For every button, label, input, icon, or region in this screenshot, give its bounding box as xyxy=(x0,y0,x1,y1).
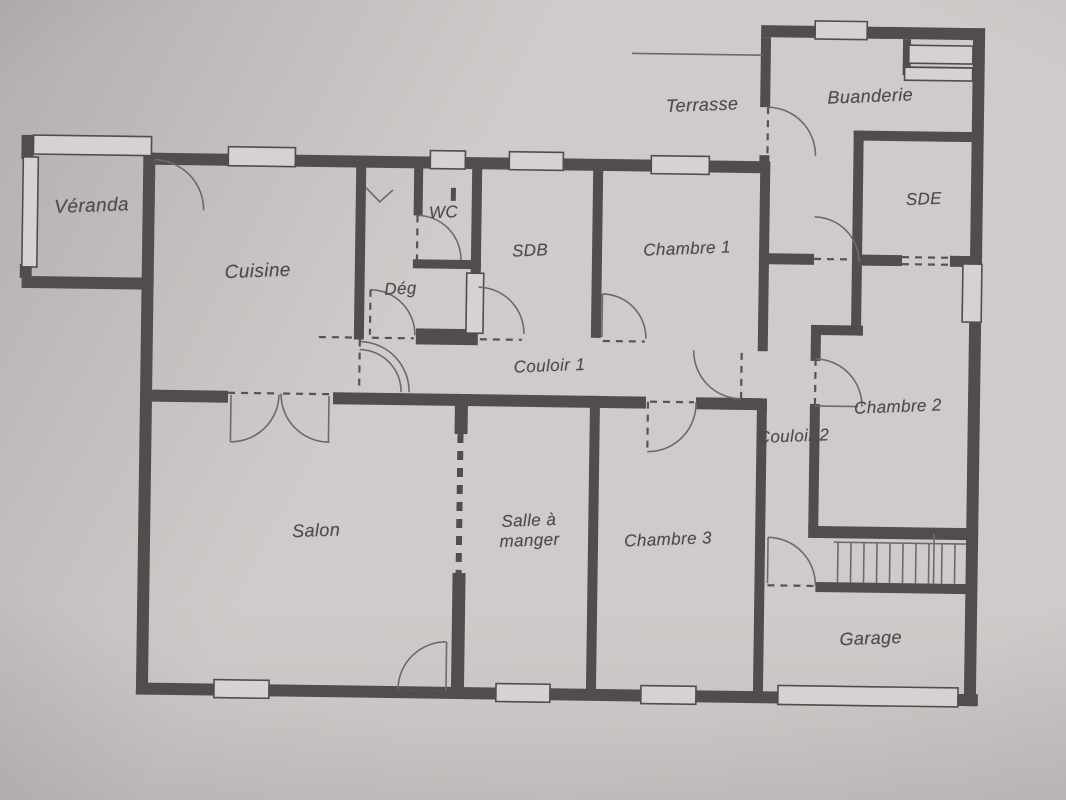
window-symbol xyxy=(905,67,973,81)
door-opening-dashed xyxy=(647,402,648,450)
door-arc xyxy=(478,287,525,334)
wall-segment xyxy=(451,573,466,689)
check-mark xyxy=(366,188,393,202)
wall-segment xyxy=(808,404,820,528)
door-arc xyxy=(602,294,647,339)
door-arc xyxy=(359,342,410,393)
door-arc xyxy=(767,537,816,586)
door-leaf xyxy=(230,395,231,442)
room-label-couloir2: Couloir 2 xyxy=(757,425,829,448)
scanned-floor-plan-page: Véranda Cuisine WC Dég SDB Chambre 1 Ter… xyxy=(0,0,1066,800)
sliding-door-dashed xyxy=(902,264,950,265)
wall-segment xyxy=(136,153,156,695)
sliding-door-dashed xyxy=(902,257,950,258)
window-symbol xyxy=(228,147,295,167)
room-label-wc: WC xyxy=(429,202,459,223)
door-leaf xyxy=(602,294,603,337)
room-label-buanderie: Buanderie xyxy=(827,84,913,109)
door-opening-dashed xyxy=(283,394,330,395)
partition-opening-dashed xyxy=(459,434,461,573)
wall-segment xyxy=(152,390,228,403)
wall-stub xyxy=(451,188,456,201)
door-arc xyxy=(647,402,696,453)
stairs-direction-line xyxy=(933,534,934,584)
room-label-salle-a-manger: Salle à manger xyxy=(498,510,560,552)
window-symbol xyxy=(430,151,465,169)
wall-segment xyxy=(761,25,983,40)
wall-segment xyxy=(471,165,483,275)
door-opening-dashed xyxy=(228,393,278,394)
door-opening-dashed xyxy=(603,341,645,342)
terrasse-boundary-line xyxy=(632,53,763,55)
wall-segment xyxy=(811,325,863,336)
window-symbol xyxy=(641,686,696,705)
stairs xyxy=(833,532,966,584)
wall-segment xyxy=(354,164,366,340)
wall-segment xyxy=(591,167,603,338)
door-opening-dashed xyxy=(767,585,813,586)
room-label-couloir1: Couloir 1 xyxy=(513,355,585,378)
wall-segment xyxy=(414,164,424,215)
door-opening-dashed xyxy=(767,107,768,155)
wall-segment xyxy=(22,276,154,290)
door-arc xyxy=(767,107,816,156)
room-label-salon: Salon xyxy=(292,519,341,542)
wall-segment xyxy=(455,394,469,434)
wall-segment xyxy=(854,130,974,142)
room-label-chambre1: Chambre 1 xyxy=(643,237,731,260)
door-sill-line xyxy=(815,406,858,407)
room-label-chambre3: Chambre 3 xyxy=(624,528,712,551)
wall-segment xyxy=(815,582,967,594)
room-label-sde: SDE xyxy=(905,189,942,210)
wall-segment xyxy=(760,37,771,107)
door-opening-dashed xyxy=(650,402,694,403)
door-opening-dashed xyxy=(741,353,742,399)
door-opening-dashed xyxy=(815,359,816,404)
wall-segment xyxy=(696,397,767,410)
garage-door-symbol xyxy=(778,685,958,707)
wall-segment xyxy=(811,335,821,361)
wall-segment xyxy=(759,253,814,265)
door-arc xyxy=(230,394,279,443)
door-leaf-panel xyxy=(466,273,484,333)
walls xyxy=(14,15,987,706)
room-label-veranda: Véranda xyxy=(54,194,129,219)
window-symbol xyxy=(909,45,973,64)
door-opening-dashed xyxy=(480,339,522,340)
stairs-treads xyxy=(837,542,955,584)
window-symbol xyxy=(22,157,39,267)
wall-segment xyxy=(851,130,864,335)
door-opening-dashed xyxy=(417,215,418,259)
door-leaf xyxy=(767,537,768,583)
window-symbol xyxy=(962,264,982,322)
room-label-garage: Garage xyxy=(839,627,902,651)
door-arc xyxy=(280,393,329,442)
door-opening-dashed xyxy=(814,259,855,260)
wall-segment xyxy=(964,28,985,706)
room-label-cuisine: Cuisine xyxy=(224,260,291,285)
door-opening-dashed xyxy=(372,338,414,339)
annotations xyxy=(366,50,763,208)
wall-segment xyxy=(808,526,968,540)
door-arc xyxy=(154,160,205,211)
door-arc xyxy=(693,350,742,399)
window-symbol xyxy=(815,21,867,40)
window-symbol xyxy=(651,156,709,175)
floor-plan: Véranda Cuisine WC Dég SDB Chambre 1 Ter… xyxy=(0,0,1066,800)
wall-segment xyxy=(21,135,33,159)
room-label-chambre2: Chambre 2 xyxy=(854,395,942,418)
window-symbol xyxy=(33,135,151,156)
window-symbol xyxy=(496,684,550,703)
windows xyxy=(16,10,985,708)
wall-segment xyxy=(586,396,600,691)
window-symbol xyxy=(214,680,269,699)
door-leaf xyxy=(328,396,329,443)
room-label-terrasse: Terrasse xyxy=(665,93,738,117)
door-opening-dashed xyxy=(359,340,360,392)
window-symbol xyxy=(509,152,563,171)
room-label-sdb: SDB xyxy=(512,240,549,261)
wall-segment xyxy=(759,155,769,171)
door-arc xyxy=(398,641,447,690)
door-opening-dashed xyxy=(370,290,371,335)
door-leaf xyxy=(446,642,447,691)
wall-segment xyxy=(413,259,481,269)
stairs-edge-line xyxy=(834,542,966,544)
room-label-deg: Dég xyxy=(384,279,417,300)
